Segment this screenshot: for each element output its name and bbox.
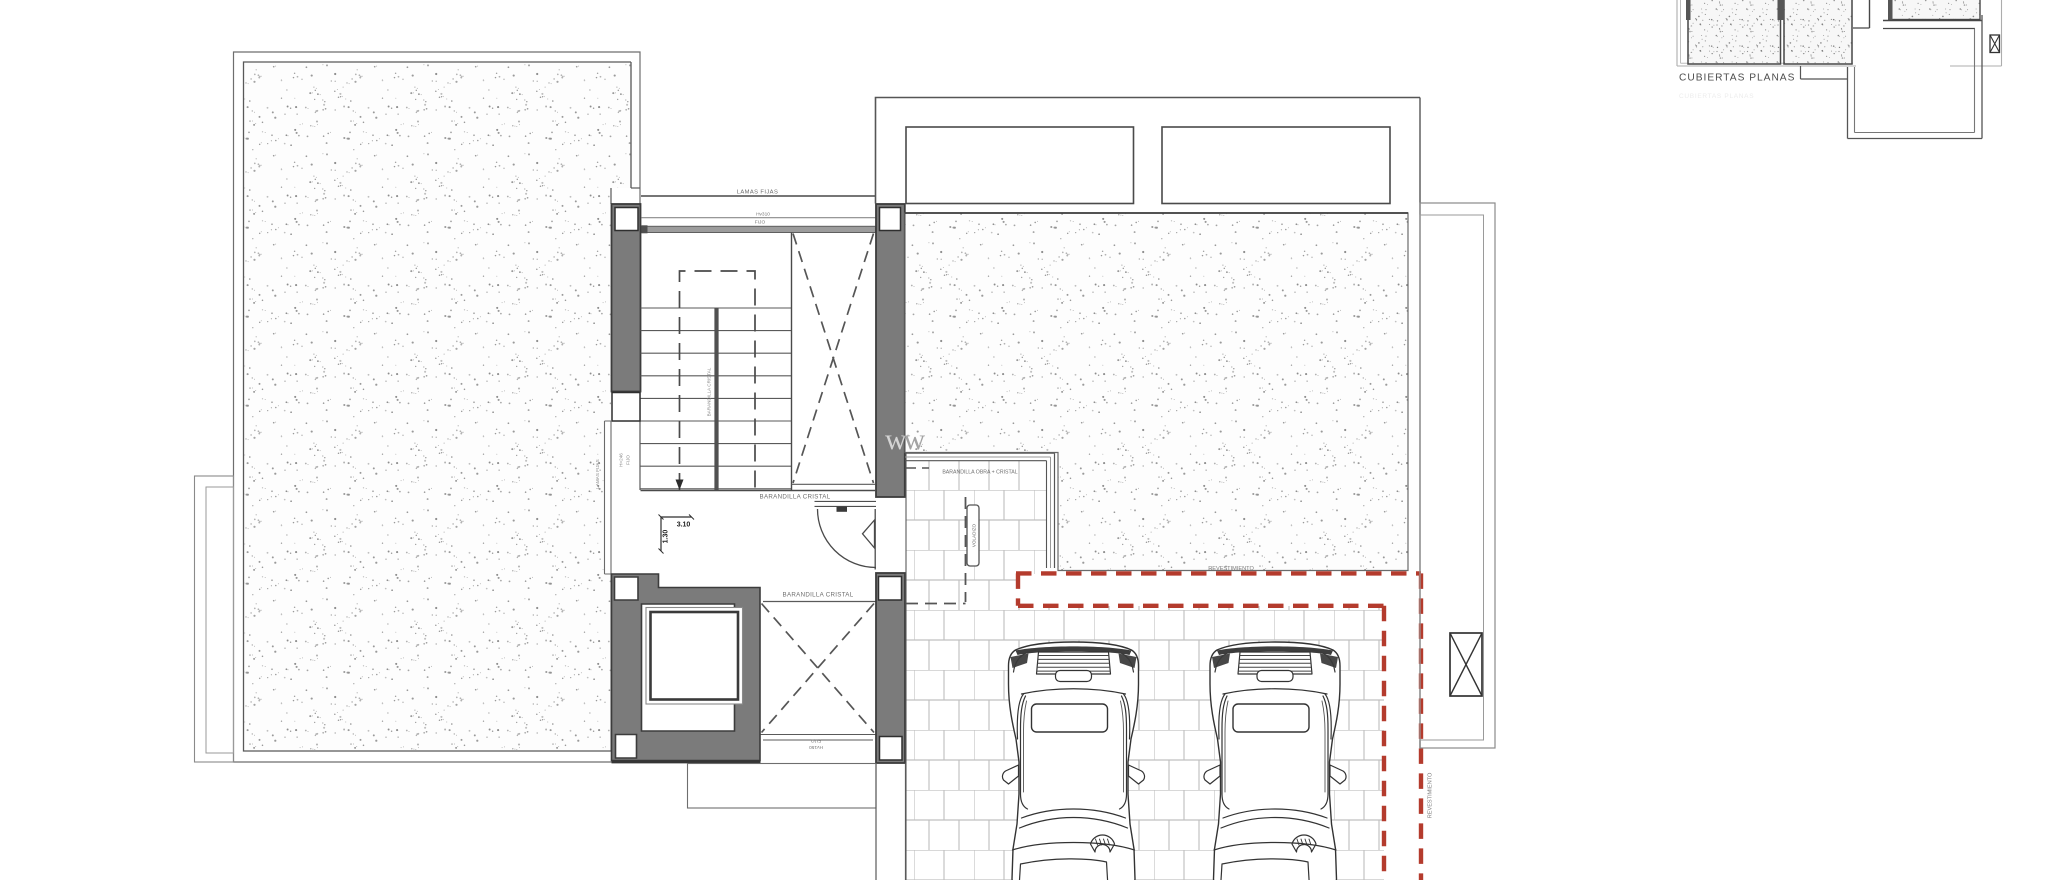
svg-text:H=246: H=246 [619, 453, 624, 467]
svg-text:BARANDILLA CRISTAL: BARANDILLA CRISTAL [707, 367, 712, 416]
svg-text:REVESTIMIENTO: REVESTIMIENTO [1208, 566, 1254, 572]
svg-text:CUBIERTAS PLANAS: CUBIERTAS PLANAS [1679, 73, 1795, 84]
svg-text:3.10: 3.10 [677, 522, 691, 529]
svg-text:VOLADIZO: VOLADIZO [972, 523, 977, 547]
svg-text:LAMAS FIJAS: LAMAS FIJAS [595, 459, 600, 488]
svg-text:REVESTIMIENTO: REVESTIMIENTO [1428, 772, 1434, 818]
svg-text:CUBIERTAS PLANAS: CUBIERTAS PLANAS [1679, 93, 1754, 100]
svg-text:1.30: 1.30 [663, 530, 670, 544]
svg-text:FIJO: FIJO [755, 219, 766, 225]
svg-text:BARANDILLA CRISTAL: BARANDILLA CRISTAL [783, 592, 854, 599]
svg-text:w: w [904, 423, 926, 456]
svg-text:FIJO: FIJO [811, 738, 822, 744]
svg-text:BARANDILLA CRISTAL: BARANDILLA CRISTAL [760, 494, 831, 501]
svg-text:Hv310: Hv310 [756, 212, 770, 218]
svg-text:BARANDILLA OBRA + CRISTAL: BARANDILLA OBRA + CRISTAL [942, 470, 1017, 476]
svg-text:LAMAS FIJAS: LAMAS FIJAS [737, 190, 778, 196]
svg-text:FIJO: FIJO [626, 455, 631, 465]
svg-text:Hv150: Hv150 [809, 744, 823, 750]
